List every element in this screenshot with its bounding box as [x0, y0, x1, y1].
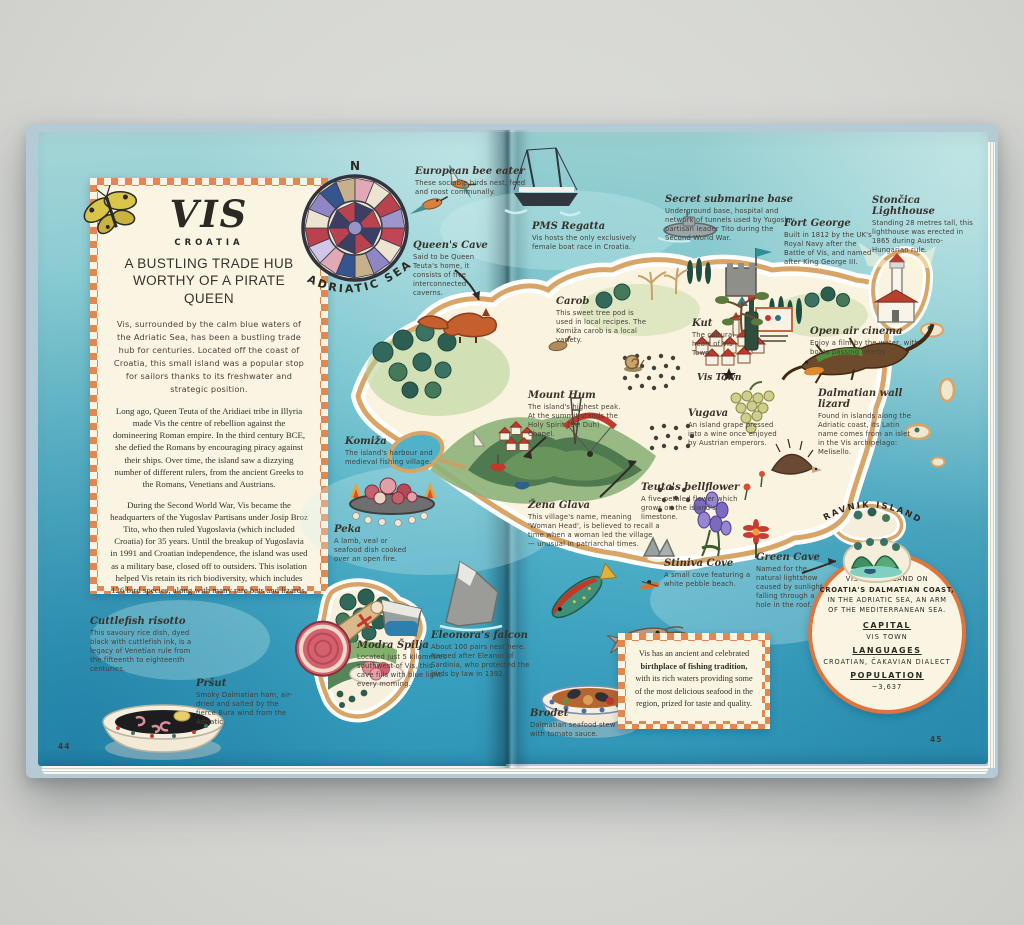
page-title: VIS — [110, 196, 308, 234]
map-label-vugava: VugavaAn island grape pressed into a win… — [688, 408, 780, 448]
population-heading: POPULATION — [850, 671, 924, 680]
map-label-prsut: PršutSmoky Dalmatian ham, air-dried and … — [196, 678, 300, 727]
intro-paragraph: Vis, surrounded by the calm blue waters … — [110, 318, 308, 396]
green-cave-illustration — [836, 534, 918, 588]
languages-heading: LANGUAGES — [852, 646, 921, 655]
fishing-note-box: Vis has an ancient and celebrated birthp… — [618, 633, 770, 729]
map-label-dalmatian-wall-lizard: Dalmatian wall lizardFound in islands al… — [818, 388, 914, 457]
map-label-european-bee-eater: European bee eaterThese sociable birds n… — [415, 166, 533, 197]
map-label-teutas-bellflower: Teuta's bellflowerA five-petaled flower … — [641, 482, 745, 522]
fishing-note-bold: birthplace of fishing tradition, — [641, 662, 748, 671]
fact-line: IN THE ADRIATIC SEA, AN ARM — [827, 596, 946, 606]
country-label: CROATIA — [110, 238, 308, 248]
fishing-note-text: Vis has an ancient and celebrated — [639, 649, 749, 658]
map-label-queens-cave: Queen's CaveSaid to be Queen Teuta's hom… — [413, 240, 493, 298]
fact-line: OF THE MEDITERRANEAN SEA. — [828, 606, 946, 616]
capital-heading: CAPITAL — [863, 621, 911, 630]
photo-backdrop: VIS CROATIA A BUSTLING TRADE HUB WORTHY … — [0, 0, 1024, 925]
tagline: A BUSTLING TRADE HUB WORTHY OF A PIRATE … — [110, 255, 308, 308]
page-stack-bottom — [42, 766, 988, 774]
ww2-paragraph: During the Second World War, Vis became … — [110, 499, 308, 596]
capital-value: VIS TOWN — [866, 633, 907, 641]
map-label-vis-town: Vis Town — [697, 374, 761, 384]
page-number-left: 44 — [58, 742, 70, 751]
map-label-mount-hum: Mount HumThe island's highest peak. At t… — [528, 390, 628, 439]
history-paragraph: Long ago, Queen Teuta of the Aridiaei tr… — [110, 405, 308, 490]
map-label-pms-regatta: PMS RegattaVis hosts the only exclusivel… — [532, 221, 644, 252]
page-stack-right — [988, 142, 995, 768]
map-label-stiniva-cove: Stiniva CoveA small cove featuring a whi… — [664, 558, 760, 589]
map-label-secret-submarine-base: Secret submarine baseUnderground base, h… — [665, 194, 797, 243]
map-label-komiza: KomižaThe island's harbour and medieval … — [345, 436, 445, 467]
languages-value: CROATIAN, ČAKAVIAN DIALECT — [823, 658, 950, 666]
map-label-green-cave: Green CaveNamed for the natural lightsho… — [756, 552, 830, 610]
map-label-brodet: BrodetDalmatian seafood stew with tomato… — [530, 708, 630, 739]
map-label-kut: KutThe cultural heart of Vis Town. — [692, 318, 750, 358]
map-label-fort-george: Fort GeorgeBuilt in 1812 by the UK's Roy… — [784, 218, 880, 267]
map-label-cuttlefish-risotto: Cuttlefish risottoThis savoury rice dish… — [90, 616, 202, 674]
map-label-carob: CarobThis sweet tree pod is used in loca… — [556, 296, 652, 345]
population-value: ~3,637 — [872, 683, 902, 691]
map-label-eleonoras-falcon: Eleonora's falconAbout 100 pairs nest he… — [431, 630, 537, 679]
map-label-open-air-cinema: Open air cinemaEnjoy a film by the water… — [810, 326, 938, 357]
page-number-right: 45 — [930, 735, 942, 744]
intro-panel: VIS CROATIA A BUSTLING TRADE HUB WORTHY … — [90, 178, 328, 594]
map-label-peka: PekaA lamb, veal or seafood dish cooked … — [334, 524, 414, 564]
fishing-note-text: with its rich waters providing some of t… — [635, 674, 753, 708]
map-label-stoncica-lighthouse: Stončica LighthouseStanding 28 metres ta… — [872, 195, 974, 255]
